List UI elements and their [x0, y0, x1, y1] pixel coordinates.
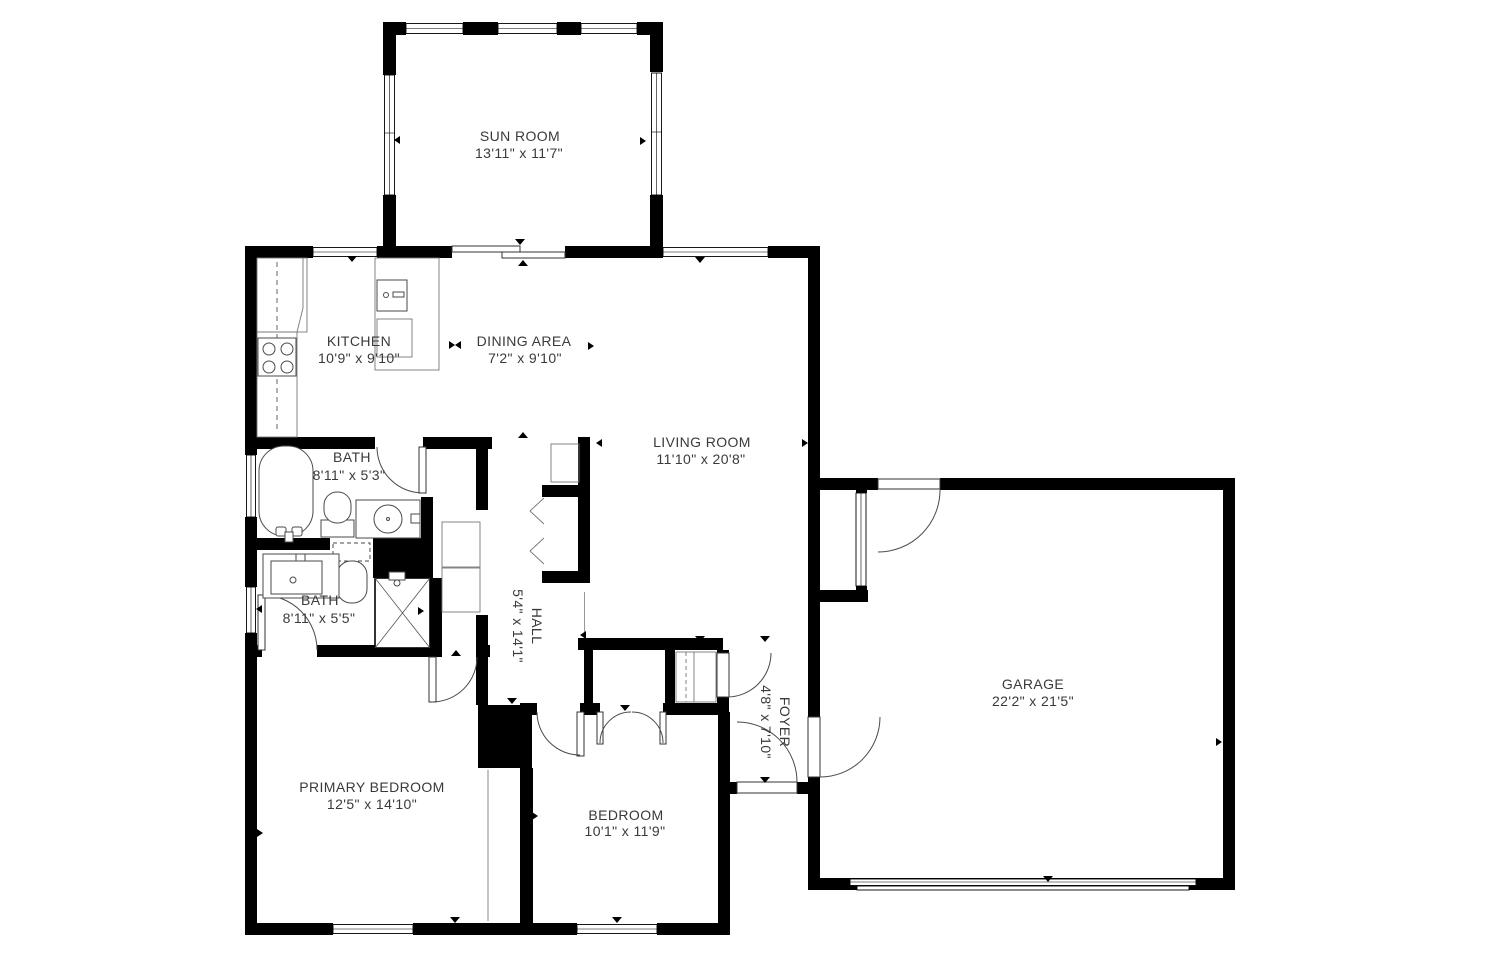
window — [856, 493, 866, 586]
opening-marker — [695, 257, 705, 263]
room-label-bedroom: BEDROOM 10'1" x 11'9" — [585, 807, 666, 839]
opening-marker — [532, 812, 538, 820]
room-dims: 7'2" x 9'10" — [488, 350, 562, 366]
room-dims: 8'11" x 5'3" — [313, 467, 386, 483]
room-label-foyer: FOYER 4'8" x 7'10" — [758, 685, 793, 759]
door-foyer-garage — [808, 717, 880, 777]
opening-marker — [518, 432, 528, 438]
room-name: PRIMARY BEDROOM — [299, 779, 445, 795]
room-name: FOYER — [777, 697, 793, 747]
double-door-bedroom — [597, 712, 666, 744]
opening-marker — [580, 631, 586, 639]
opening-marker — [257, 829, 263, 837]
opening-marker — [620, 705, 630, 711]
window — [663, 248, 768, 257]
room-dims: 10'9" x 9'10" — [318, 350, 400, 366]
room-name: LIVING ROOM — [653, 434, 751, 450]
room-dims: 4'8" x 7'10" — [758, 685, 774, 759]
room-name: HALL — [529, 608, 545, 645]
window — [333, 925, 413, 934]
room-name: BATH — [301, 592, 339, 608]
opening-marker — [449, 341, 455, 349]
room-name: BATH — [333, 449, 371, 465]
window — [313, 248, 377, 257]
opening-marker — [347, 256, 357, 262]
window — [652, 73, 662, 195]
coat-closet — [676, 652, 716, 702]
room-dims: 22'2" x 21'5" — [992, 693, 1074, 709]
opening-marker — [612, 917, 622, 923]
room-dims: 12'5" x 14'10" — [327, 796, 417, 812]
window — [498, 24, 557, 34]
bathtub — [259, 446, 313, 542]
opening-marker — [1216, 738, 1222, 746]
stove — [258, 338, 296, 376]
room-label-bath-upper: BATH 8'11" x 5'3" — [313, 449, 386, 483]
opening-marker — [596, 439, 602, 447]
door-bedroom — [537, 712, 584, 756]
linen-closet-shelves — [442, 522, 480, 612]
door-primary-bedroom — [429, 657, 477, 702]
opening-marker — [451, 650, 461, 656]
room-dims: 10'1" x 11'9" — [585, 823, 666, 839]
window — [581, 24, 637, 34]
window — [385, 75, 395, 195]
opening-marker — [640, 137, 646, 145]
opening-marker — [455, 341, 461, 349]
window — [247, 587, 256, 633]
window — [406, 24, 463, 34]
floor-plan-drawing: SUN ROOM 13'11" x 11'7" KITCHEN 10'9" x … — [0, 0, 1500, 977]
room-name: GARAGE — [1002, 676, 1064, 692]
window — [577, 925, 657, 934]
room-label-primary-bedroom: PRIMARY BEDROOM 12'5" x 14'10" — [299, 779, 445, 812]
door-garage-service — [878, 479, 940, 552]
bathroom-sink — [356, 500, 420, 538]
room-dims: 13'11" x 11'7" — [475, 145, 563, 161]
room-label-sun-room: SUN ROOM 13'11" x 11'7" — [475, 128, 563, 161]
interior-walls — [245, 437, 729, 923]
room-dims: 8'11" x 5'5" — [283, 610, 356, 626]
opening-marker — [518, 260, 528, 266]
garage-door — [850, 879, 1196, 890]
floor-plan: SUN ROOM 13'11" x 11'7" KITCHEN 10'9" x … — [0, 0, 1500, 977]
opening-marker — [588, 342, 594, 350]
room-label-garage: GARAGE 22'2" x 21'5" — [992, 676, 1074, 709]
window — [247, 455, 256, 517]
room-name: SUN ROOM — [480, 128, 560, 144]
opening-marker — [507, 698, 517, 704]
room-label-hall: HALL 5'4" x 14'1" — [510, 589, 545, 663]
sliding-door-sunroom — [452, 246, 565, 258]
toilet — [321, 492, 354, 537]
room-name: KITCHEN — [327, 333, 391, 349]
room-label-living-room: LIVING ROOM 11'10" x 20'8" — [653, 434, 751, 467]
room-name: DINING AREA — [477, 333, 572, 349]
room-name: BEDROOM — [588, 807, 663, 823]
room-dims: 11'10" x 20'8" — [656, 451, 745, 467]
room-label-kitchen: KITCHEN 10'9" x 9'10" — [318, 333, 400, 366]
opening-marker — [515, 239, 525, 245]
opening-marker — [450, 917, 460, 923]
room-label-dining-area: DINING AREA 7'2" x 9'10" — [477, 333, 572, 366]
opening-marker — [802, 439, 808, 447]
opening-marker — [760, 636, 770, 642]
room-dims: 5'4" x 14'1" — [510, 589, 526, 663]
hall-closet — [530, 444, 579, 564]
